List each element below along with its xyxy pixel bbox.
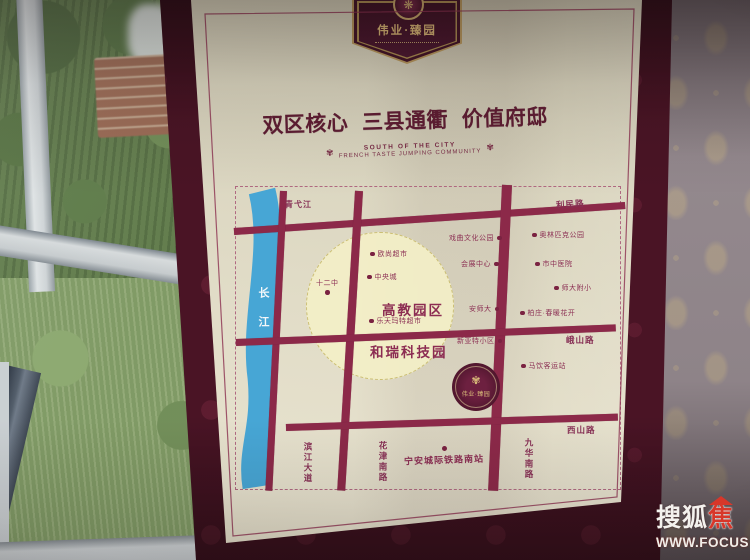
poi-olympic-park: 奥林匹克公园 <box>532 230 585 240</box>
poi-dot-icon <box>367 275 372 280</box>
pennant-subtext-line <box>375 42 439 43</box>
poi-label: 新亚特小区 <box>457 336 495 346</box>
poi-dot-icon <box>554 286 559 291</box>
poi-label: 市中医院 <box>543 259 573 269</box>
poi-dot-icon <box>370 252 375 257</box>
poi-label: 乐天玛特超市 <box>377 316 422 326</box>
road-label-eshan: 峨山路 <box>566 334 595 346</box>
station-label: 宁安城际铁路南站 <box>404 452 484 468</box>
poi-dot-icon <box>535 262 540 267</box>
poi-dot-icon <box>532 233 537 238</box>
project-marker: ✾ 伟业·臻园 <box>452 363 500 411</box>
brand-pennant: ❋ 伟业·臻园 <box>352 0 462 64</box>
poi-label: 柏庄·春暖花开 <box>528 308 576 318</box>
poi-label: 中央城 <box>375 272 398 282</box>
poi-label: 戏曲文化公园 <box>449 233 494 243</box>
poi-no12-middle-school: 十二中 <box>316 278 339 295</box>
poi-dot-icon <box>325 290 330 295</box>
qiyijiang-river-label: 青弋江 <box>285 199 312 210</box>
poi-xinyate-estate: 新亚特小区 <box>457 336 502 346</box>
watermark-brand-red: 焦 <box>708 504 734 532</box>
location-map: 长江 青弋江 利民路 峨山路 西山路 九华南路 花津南路 滨江大道 高教园区 和… <box>235 186 621 490</box>
watermark-url: WWW.FOCUS <box>656 535 749 550</box>
poi-label: 安师大 <box>469 304 492 314</box>
station-dot-icon <box>442 446 447 451</box>
yangtze-river-label: 长江 <box>255 287 271 345</box>
road-label-jiuhua-south: 九华南路 <box>523 438 535 480</box>
poi-label: 会展中心 <box>461 259 491 269</box>
road-label-binjiang-avenue: 滨江大道 <box>302 442 314 484</box>
poi-convention-center: 会展中心 <box>461 259 499 269</box>
photo-scene: ❋ 伟业·臻园 双区核心 三县通衢 价值府邸 ✾ ✾ SOUTH OF THE … <box>0 0 750 560</box>
poi-label: 欧尚超市 <box>378 249 408 259</box>
poi-dot-icon <box>498 339 503 344</box>
poi-zhongyangcheng: 中央城 <box>367 272 397 282</box>
flourish-left-icon: ✾ <box>326 148 334 159</box>
poi-dot-icon <box>494 262 499 267</box>
flourish-right-icon: ✾ <box>486 142 494 153</box>
road-label-xishan: 西山路 <box>567 424 596 436</box>
poi-opera-culture-park: 戏曲文化公园 <box>449 233 502 243</box>
poi-shida-primary: 师大附小 <box>554 283 592 293</box>
poi-dot-icon <box>520 311 525 316</box>
poi-auchan: 欧尚超市 <box>370 249 408 259</box>
brand-name: 伟业·臻园 <box>352 22 462 38</box>
watermark-brand: 搜狐 <box>656 504 708 532</box>
poi-label: 奥林匹克公园 <box>540 230 585 240</box>
poi-dot-icon <box>497 236 502 241</box>
poi-dot-icon <box>369 319 374 324</box>
poi-label: 十二中 <box>316 278 339 288</box>
zone-herui: 和瑞科技园 <box>370 341 448 361</box>
house-roof-icon <box>709 496 733 505</box>
road-label-huajin-south: 花津南路 <box>377 441 389 483</box>
poi-dot-icon <box>521 364 526 369</box>
poi-anhui-normal-university: 安师大 <box>469 304 499 314</box>
poi-baizhuang: 柏庄·春暖花开 <box>520 308 575 318</box>
poi-dot-icon <box>495 307 500 312</box>
road-label-limin: 利民路 <box>556 197 585 211</box>
poi-tcm-hospital: 市中医院 <box>535 259 573 269</box>
poi-lotte-mart: 乐天玛特超市 <box>369 316 422 326</box>
poi-label: 师大附小 <box>562 283 592 293</box>
marker-ring <box>455 366 497 408</box>
poi-mayin-bus-station: 马饮客运站 <box>521 361 566 371</box>
poi-label: 马饮客运站 <box>529 361 567 371</box>
watermark: 搜狐焦 WWW.FOCUS <box>656 498 749 550</box>
railway-south-station: 宁安城际铁路南站 <box>404 446 484 466</box>
